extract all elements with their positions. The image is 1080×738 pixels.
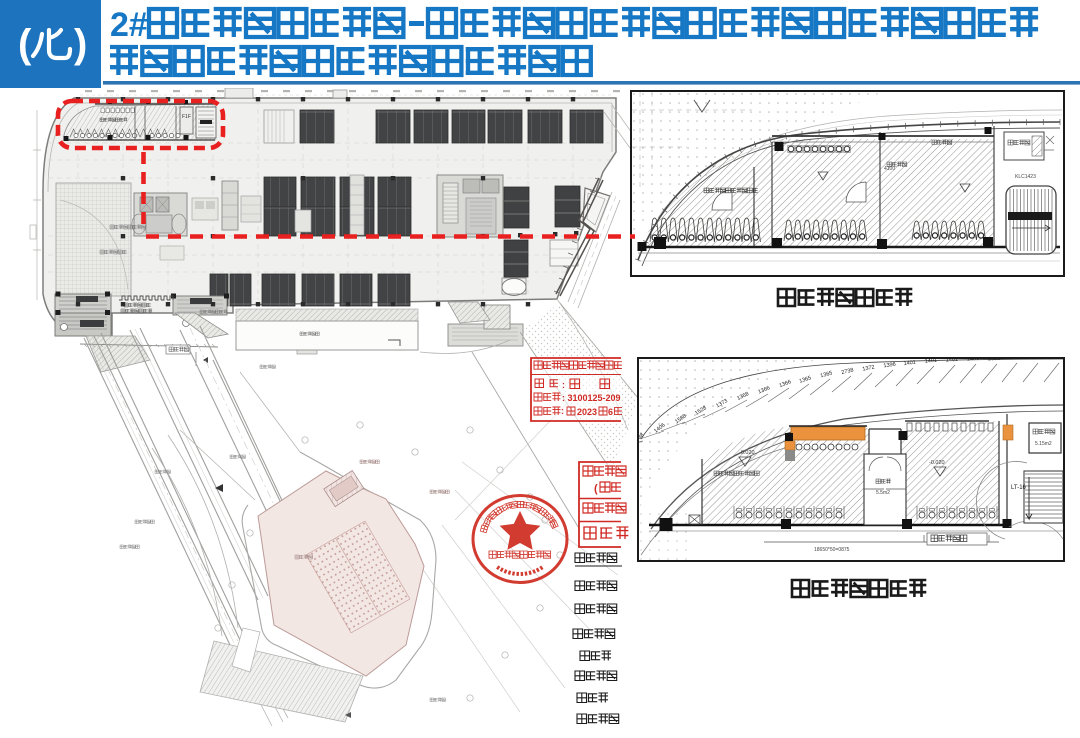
svg-text:(: ( [18,22,32,66]
svg-text:2#: 2# [110,6,148,44]
svg-text:): ) [74,22,87,66]
